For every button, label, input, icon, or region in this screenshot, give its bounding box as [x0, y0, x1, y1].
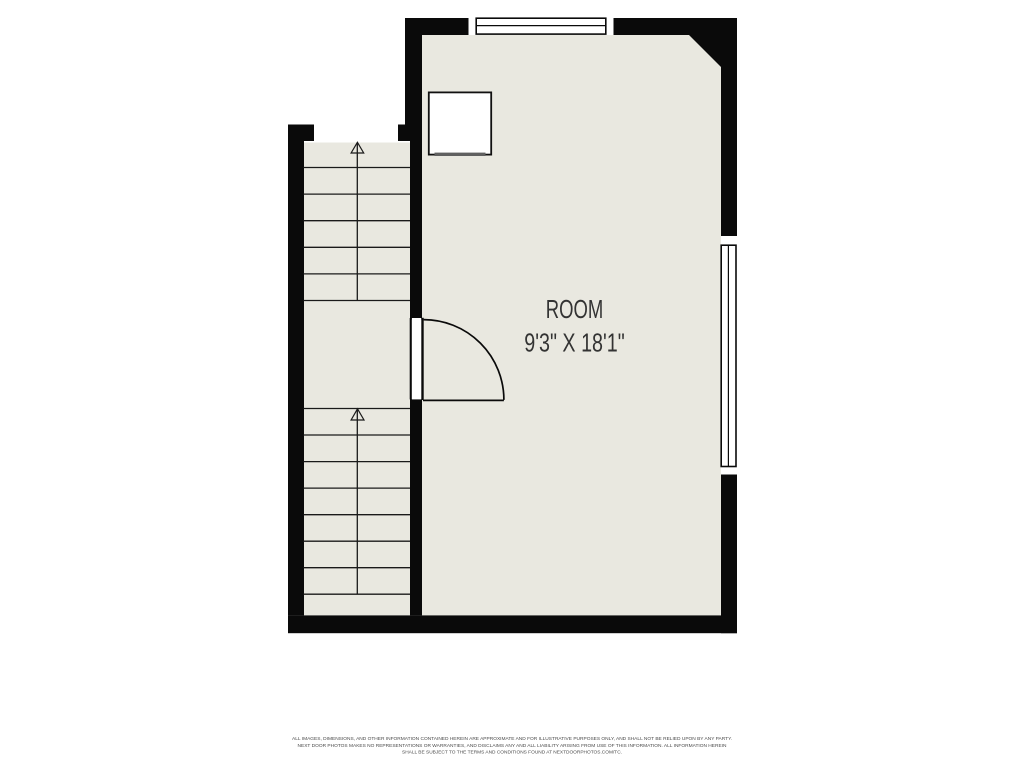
svg-text:NEXT DOOR PHOTOS MAKES NO REPR: NEXT DOOR PHOTOS MAKES NO REPRESENTATION…	[298, 743, 727, 748]
svg-text:ALL IMAGES, DIMENSIONS, AND OT: ALL IMAGES, DIMENSIONS, AND OTHER INFORM…	[292, 736, 732, 741]
svg-text:SHALL BE SUBJECT TO THE TERMS: SHALL BE SUBJECT TO THE TERMS AND CONDIT…	[402, 750, 622, 755]
svg-text:9'3" X 18'1": 9'3" X 18'1"	[524, 330, 625, 358]
svg-text:ROOM: ROOM	[546, 296, 604, 324]
